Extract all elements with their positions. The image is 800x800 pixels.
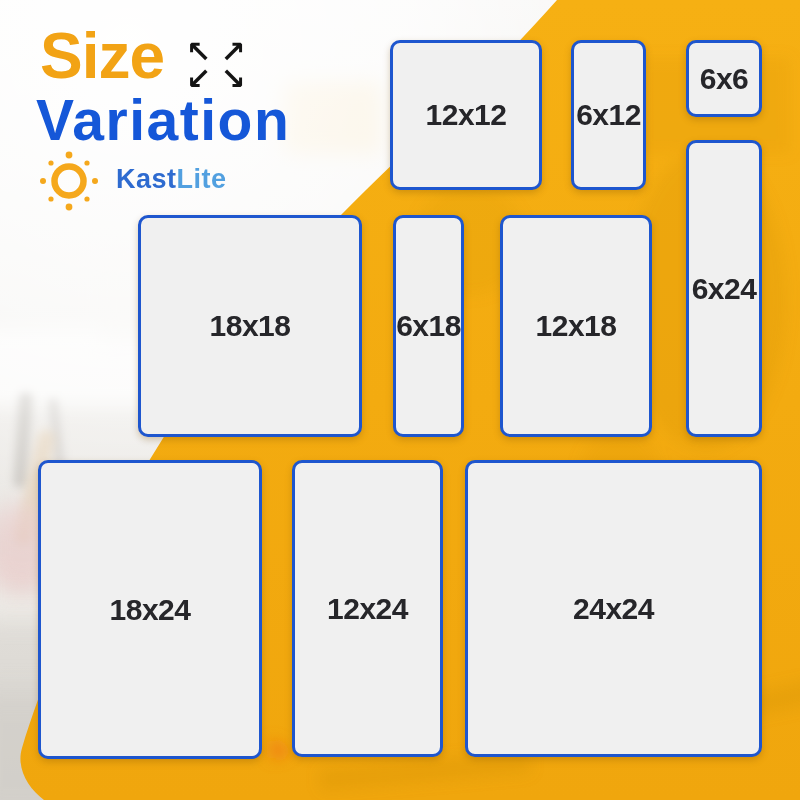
- brand-name-part1: Kast: [116, 164, 177, 194]
- size-panel-label: 18x24: [110, 593, 191, 627]
- size-panel-label: 24x24: [573, 592, 654, 626]
- size-panel-label: 6x24: [692, 272, 757, 306]
- sun-icon: [40, 150, 104, 214]
- expand-arrows-icon: ↖↗↙↘: [186, 38, 258, 92]
- size-panel-label: 12x18: [536, 309, 617, 343]
- size-panel-18x24: 18x24: [38, 460, 262, 759]
- size-panel-label: 6x6: [700, 62, 749, 96]
- size-panel-6x18: 6x18: [393, 215, 464, 437]
- product-infographic: 12x126x126x66x2418x186x1812x1818x2412x24…: [0, 0, 800, 800]
- size-panel-6x6: 6x6: [686, 40, 762, 117]
- size-panel-12x18: 12x18: [500, 215, 652, 437]
- size-panel-6x24: 6x24: [686, 140, 762, 437]
- brand-name: KastLite: [116, 164, 227, 195]
- brand-name-part2: Lite: [177, 164, 227, 194]
- size-panel-label: 12x12: [426, 98, 507, 132]
- size-panel-6x12: 6x12: [571, 40, 646, 190]
- size-panel-label: 6x12: [576, 98, 641, 132]
- size-panel-label: 6x18: [396, 309, 461, 343]
- size-panel-12x12: 12x12: [390, 40, 542, 190]
- size-panel-label: 12x24: [327, 592, 408, 626]
- size-panel-18x18: 18x18: [138, 215, 362, 437]
- size-panel-12x24: 12x24: [292, 460, 443, 757]
- title-variation: Variation: [36, 92, 290, 149]
- size-panel-24x24: 24x24: [465, 460, 762, 757]
- size-panel-label: 18x18: [210, 309, 291, 343]
- title-size: Size: [40, 24, 164, 88]
